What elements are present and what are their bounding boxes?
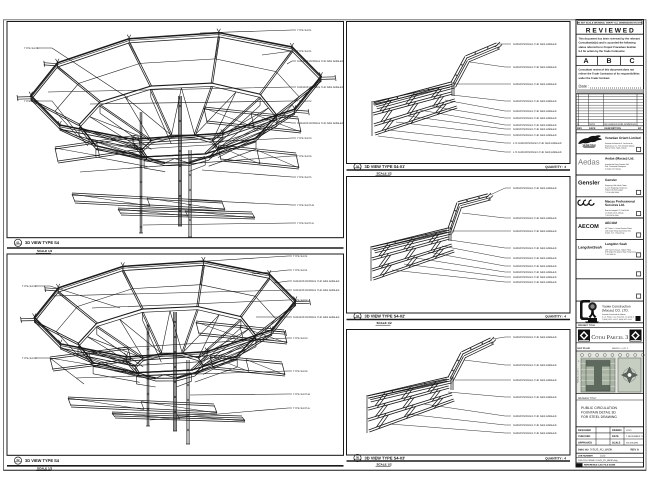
svg-text:04: 04 — [356, 314, 360, 318]
svg-text:Consultant review of this: Consultant review of this document does … — [579, 69, 635, 72]
svg-text:SHS50X50X6mm THK G&S ANGLES: SHS50X50X6mm THK G&S ANGLES — [513, 396, 557, 399]
svg-text:5.4 for action by the Tra: 5.4 for action by the Trade Contractor. — [579, 50, 626, 53]
svg-text:Resort Hotel, Taipa, Macau: Resort Hotel, Taipa, Macau — [605, 147, 627, 150]
svg-text:TYPE S4-01: TYPE S4-01 — [293, 255, 308, 258]
svg-text:03: 03 — [356, 164, 360, 168]
svg-text:TYPE S4-02: TYPE S4-02 — [293, 299, 308, 302]
svg-text:DATE: DATE — [589, 127, 596, 130]
svg-text:3D VIEW TYPE S4-02': 3D VIEW TYPE S4-02' — [365, 314, 406, 319]
svg-text:CAD FILE NAME 3-SUS_FD_BN3K.d: CAD FILE NAME 3-SUS_FD_BN3K.dwg — [578, 459, 618, 462]
svg-text:5 andar A-B, Macau: 5 andar A-B, Macau — [605, 167, 621, 170]
svg-text:TYPE S4-05 B: TYPE S4-05 B — [293, 393, 310, 396]
svg-text:SHS150X150X8mm THK G&S ANGLES: SHS150X150X8mm THK G&S ANGLES — [297, 86, 344, 89]
svg-text:3123: 3123 — [600, 455, 606, 458]
svg-text:02: 02 — [16, 458, 20, 462]
svg-text:SHS50X50X6mm THK G&S ANGLES: SHS50X50X6mm THK G&S ANGLES — [513, 336, 557, 339]
svg-text:DRAWN: DRAWN — [612, 429, 622, 432]
svg-text:LangdonSeah: LangdonSeah — [578, 246, 603, 250]
svg-text:SHS150X150X8mm THK G&S ANGLES: SHS150X150X8mm THK G&S ANGLES — [293, 289, 340, 292]
svg-text:SHS50X50X6mm THK G&S ANGLES: SHS50X50X6mm THK G&S ANGLES — [513, 415, 557, 418]
svg-text:Aedas: Aedas — [578, 158, 600, 167]
svg-text:SHS50X50X6mm THK G&S ANGLES: SHS50X50X6mm THK G&S ANGLES — [513, 364, 557, 367]
svg-text:SHS50X50X6mm THK G&S ANGLES: SHS50X50X6mm THK G&S ANGLES — [513, 379, 557, 382]
svg-text:SHS50X50X6mm THK G&S ANGLES: SHS50X50X6mm THK G&S ANGLES — [513, 66, 557, 69]
svg-text:DESIGNED: DESIGNED — [578, 429, 591, 432]
svg-text:SHS50X50X6mm THK G&S ANGLES: SHS50X50X6mm THK G&S ANGLES — [513, 134, 557, 137]
svg-text:SHS50X50X6mm THK G&S ANGLES: SHS50X50X6mm THK G&S ANGLES — [513, 265, 557, 268]
svg-text:TYPE S4-01: TYPE S4-01 — [24, 47, 39, 50]
svg-text:SCALE 1/2: SCALE 1/2 — [377, 172, 393, 176]
svg-text:This document has been rev: This document has been reviewed by the r… — [579, 38, 640, 41]
svg-text:SCALE 1/2: SCALE 1/2 — [377, 463, 393, 467]
svg-text:JOB NUMBER: JOB NUMBER — [578, 455, 593, 458]
svg-text:(Macau) CO. LTD.: (Macau) CO. LTD. — [602, 309, 629, 313]
svg-text:DRAWING TITLE:: DRAWING TITLE: — [578, 397, 597, 400]
svg-text:LYAO: LYAO — [626, 429, 632, 432]
svg-text:AECOM: AECOM — [605, 221, 617, 225]
svg-text:SHS50X50X6mm THK G&S ANGLES: SHS50X50X6mm THK G&S ANGLES — [513, 281, 557, 284]
svg-text:TYPE S4-04: TYPE S4-04 — [293, 370, 308, 373]
svg-text:T 29 7333 33: T 29 7333 33 — [605, 253, 616, 256]
svg-text:DWG NO: DWG NO — [578, 449, 589, 452]
svg-text:under the Trade Contract.: under the Trade Contract. — [579, 77, 611, 80]
svg-text:TYPE S4-02: TYPE S4-02 — [297, 100, 312, 103]
svg-text:AS SHOWN: AS SHOWN — [626, 441, 638, 444]
svg-text:BY: BY — [638, 127, 642, 130]
svg-text:L75 SHS50X50X6mm THK G&S ANGLE: L75 SHS50X50X6mm THK G&S ANGLES — [513, 142, 562, 145]
svg-text:SHS50X50X6mm THK G&S ANGLES: SHS50X50X6mm THK G&S ANGLES — [513, 217, 557, 220]
svg-text:KEY PLAN: KEY PLAN — [578, 347, 590, 350]
svg-text:TYPE S4-05 A: TYPE S4-05 A — [297, 222, 314, 225]
svg-text:QUANTITY : 4: QUANTITY : 4 — [545, 165, 566, 169]
svg-text:DO NOT SCALE DRAWING. VERIFY A: DO NOT SCALE DRAWING. VERIFY ALL DIMENSI… — [577, 22, 643, 25]
svg-text:SHS50X50X6mm THK G&S ANGLES: SHS50X50X6mm THK G&S ANGLES — [513, 128, 557, 131]
svg-text:TYPE S4-03: TYPE S4-03 — [297, 137, 312, 140]
svg-text:7 NOVEMBER '18: 7 NOVEMBER '18 — [626, 435, 645, 438]
svg-text:Date :: Date : — [579, 84, 590, 89]
svg-text:SHS150X150X8mm THK G&S ANGLES: SHS150X150X8mm THK G&S ANGLES — [297, 122, 344, 125]
svg-text:SHS50X50X6mm THK G&S ANGLES: SHS50X50X6mm THK G&S ANGLES — [513, 43, 557, 46]
svg-text:relieve the Trade Contracto: relieve the Trade Contractor of its resp… — [579, 73, 641, 76]
svg-text:status referred to in Pro: status referred to in Project Procedure … — [579, 46, 637, 49]
svg-text:AECOM: AECOM — [578, 224, 599, 230]
svg-text:SHS50X50X6mm THK G&S ANGLES: SHS50X50X6mm THK G&S ANGLES — [513, 271, 557, 274]
svg-text:3D VIEW TYPE S4-01': 3D VIEW TYPE S4-01' — [365, 164, 406, 169]
svg-text:T (853) 2872 2222 F (853) 287: T (853) 2872 2222 F (853) 2872 2221 — [602, 318, 632, 321]
svg-text:SHS150X150X8mm THK G&S ANGLES: SHS150X150X8mm THK G&S ANGLES — [293, 316, 340, 319]
svg-text:TYPE S4-05: TYPE S4-05 — [297, 176, 312, 179]
svg-text:PUBLIC CIRCULATION: PUBLIC CIRCULATION — [581, 406, 617, 410]
svg-text:QUANTITY : 4: QUANTITY : 4 — [545, 315, 566, 319]
svg-text:C: C — [629, 58, 634, 65]
svg-text:SCALE 1/2: SCALE 1/2 — [37, 467, 53, 471]
svg-text:QUANTITY : 4: QUANTITY : 4 — [545, 456, 566, 460]
svg-text:TYPE S4-01: TYPE S4-01 — [293, 269, 308, 272]
svg-text:Aedas (Macau) Ltd.: Aedas (Macau) Ltd. — [605, 157, 634, 161]
svg-text:SCALE 1/2: SCALE 1/2 — [37, 249, 53, 253]
svg-text:TYPE S4-05 B: TYPE S4-05 B — [297, 204, 314, 207]
svg-text:CHECKED: CHECKED — [578, 435, 591, 438]
svg-text:FOR STEEL DRAWING: FOR STEEL DRAWING — [581, 415, 617, 419]
svg-text:01: 01 — [16, 240, 20, 244]
svg-text:Consultant(s)(s) and is acc: Consultant(s)(s) and is accorded the fol… — [579, 42, 636, 45]
svg-text:SHS50X50X6mm THK G&S ANGLES: SHS50X50X6mm THK G&S ANGLES — [513, 110, 557, 113]
svg-text:SHS50X50X6mm THK G&S ANGLES: SHS50X50X6mm THK G&S ANGLES — [513, 187, 557, 190]
svg-text:REV A: REV A — [631, 448, 639, 452]
svg-text:REFERENCE CAD FILE NAME: REFERENCE CAD FILE NAME — [584, 464, 616, 467]
svg-text:SHS50X50X6mm THK G&S ANGLES: SHS50X50X6mm THK G&S ANGLES — [513, 257, 557, 260]
svg-text:SHS50X50X6mm THK G&S ANGLES: SHS50X50X6mm THK G&S ANGLES — [513, 276, 557, 279]
svg-text:SHS150X150X8mm THK G&S ANGLES: SHS150X150X8mm THK G&S ANGLES — [293, 280, 340, 283]
svg-text:SHS150X150X8mm THK G&S ANGLES: SHS150X150X8mm THK G&S ANGLES — [297, 60, 344, 63]
svg-text:Venetian Orient Limited: Venetian Orient Limited — [605, 136, 641, 140]
svg-text:05: 05 — [356, 456, 360, 460]
svg-text:SHS50X50X6mm THK G&S ANGLES: SHS50X50X6mm THK G&S ANGLES — [513, 100, 557, 103]
svg-text:SHS50X50X6mm THK G&S ANGLES: SHS50X50X6mm THK G&S ANGLES — [513, 247, 557, 250]
svg-text:TYPE S4-05 A: TYPE S4-05 A — [293, 407, 310, 410]
svg-text:L75 SHS50X50X6mm THK G&S ANGLE: L75 SHS50X50X6mm THK G&S ANGLES — [513, 151, 562, 154]
svg-text:TYPE S4-02: TYPE S4-02 — [22, 285, 37, 288]
svg-text:3-SUS_FD_BN3K: 3-SUS_FD_BN3K — [590, 448, 613, 452]
svg-text:FOUNTAIN DETAIL 3D: FOUNTAIN DETAIL 3D — [581, 411, 616, 415]
svg-text:Gensler: Gensler — [605, 178, 618, 182]
svg-text:SCALE: SCALE — [612, 441, 621, 444]
svg-text:TYPE S4-03: TYPE S4-03 — [293, 337, 308, 340]
svg-text:SHS50X50X6mm THK G&S ANGLES: SHS50X50X6mm THK G&S ANGLES — [513, 424, 557, 427]
svg-text:SHS50X50X6mm THK G&S ANGLES: SHS50X50X6mm THK G&S ANGLES — [513, 83, 557, 86]
svg-text:T 853 2878 3288: T 853 2878 3288 — [605, 214, 619, 217]
svg-text:SHS50X50X6mm THK G&S ANGLES: SHS50X50X6mm THK G&S ANGLES — [513, 432, 557, 435]
svg-text:PARCEL 1, LOT 2: PARCEL 1, LOT 2 — [612, 347, 629, 350]
svg-text:TYPE S4-03: TYPE S4-03 — [22, 357, 37, 360]
svg-text:VENETIAN: VENETIAN — [582, 144, 595, 147]
svg-text:R E V I E W E D: R E V I E W E D — [586, 27, 634, 34]
svg-text:PARCEL 1, LOT 1: PARCEL 1, LOT 1 — [577, 369, 580, 383]
svg-text:A: A — [583, 58, 588, 65]
svg-text:SHS50X50X6mm THK G&S ANGLES: SHS50X50X6mm THK G&S ANGLES — [513, 124, 557, 127]
svg-text:T 81 3 6406 6330: T 81 3 6406 6330 — [605, 191, 619, 194]
svg-text:SHS50X50X6mm THK G&S ANGLES: SHS50X50X6mm THK G&S ANGLES — [513, 117, 557, 120]
svg-text:TYPE S4-02: TYPE S4-02 — [24, 100, 39, 103]
svg-text:Services Ltd.: Services Ltd. — [605, 203, 625, 207]
svg-text:Langdon Seah: Langdon Seah — [605, 242, 627, 246]
svg-text:3D VIEW TYPE S4-03': 3D VIEW TYPE S4-03' — [365, 455, 406, 460]
svg-text:B: B — [606, 58, 611, 65]
svg-text:PROJECT TITLE: PROJECT TITLE — [578, 324, 596, 327]
svg-text:3D VIEW TYPE S4: 3D VIEW TYPE S4 — [25, 240, 60, 245]
svg-text:DATE: DATE — [612, 435, 619, 438]
svg-text:3D VIEW TYPE S4: 3D VIEW TYPE S4 — [25, 458, 60, 463]
svg-text:SCALE 1/2: SCALE 1/2 — [377, 321, 393, 325]
svg-text:Shatin, N.T., Hong Kong: Shatin, N.T., Hong Kong — [605, 232, 624, 235]
svg-text:DESCRIPTION: DESCRIPTION — [605, 127, 622, 130]
svg-text:TYPE S4-01: TYPE S4-01 — [297, 29, 312, 32]
svg-text:APPROVED: APPROVED — [578, 441, 592, 444]
svg-text:SHS50X50X6mm THK G&S ANGLES: SHS50X50X6mm THK G&S ANGLES — [513, 230, 557, 233]
svg-text:TYPE S4-04: TYPE S4-04 — [297, 155, 312, 158]
svg-text:Gensler: Gensler — [578, 180, 600, 187]
svg-text:TYPE S4-01: TYPE S4-01 — [297, 50, 312, 53]
svg-text:REV: REV — [577, 127, 582, 130]
